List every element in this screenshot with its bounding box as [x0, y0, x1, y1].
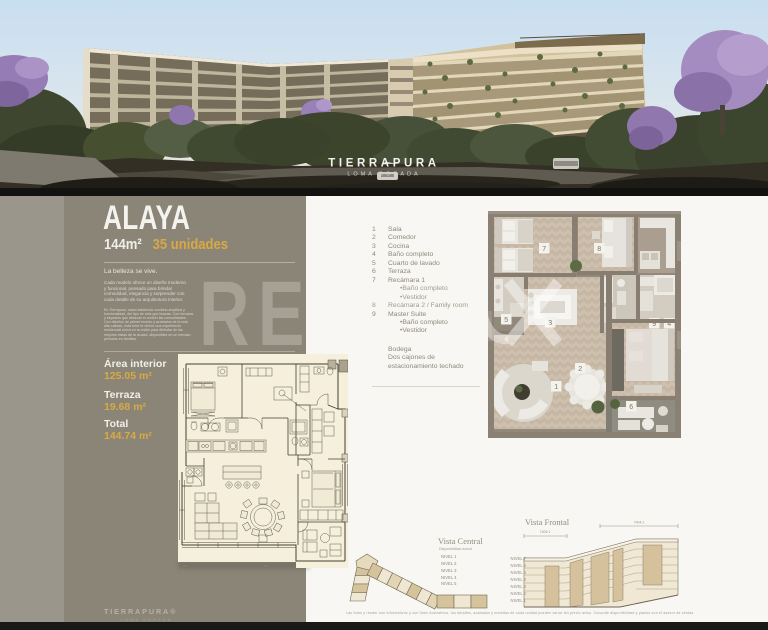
- svg-text:LOMA DORADA: LOMA DORADA: [347, 172, 420, 178]
- svg-text:7406.1: 7406.1: [540, 530, 551, 534]
- svg-text:1: 1: [554, 384, 558, 391]
- svg-text:7404.1: 7404.1: [634, 521, 645, 525]
- svg-text:6: 6: [629, 404, 633, 411]
- svg-text:TIERRAPURA: TIERRAPURA: [328, 158, 439, 170]
- svg-text:2: 2: [578, 366, 582, 373]
- svg-text:8: 8: [597, 246, 601, 253]
- svg-text:7: 7: [542, 246, 546, 253]
- svg-text:5: 5: [504, 317, 508, 324]
